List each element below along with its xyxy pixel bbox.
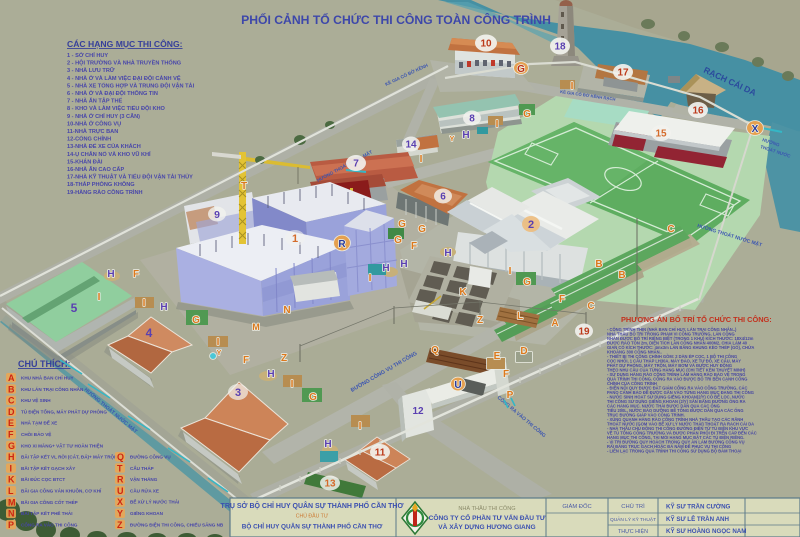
svg-text:I: I bbox=[10, 463, 13, 473]
svg-text:H: H bbox=[400, 259, 407, 270]
svg-text:H: H bbox=[267, 369, 274, 380]
svg-text:CHỒI BẢO VỆ: CHỒI BẢO VỆ bbox=[21, 430, 51, 437]
svg-text:GIẾNG KHOAN: GIẾNG KHOAN bbox=[130, 510, 164, 516]
svg-text:D: D bbox=[8, 407, 15, 417]
svg-text:Q: Q bbox=[431, 345, 439, 356]
svg-text:H: H bbox=[324, 439, 331, 450]
svg-text:K: K bbox=[459, 287, 467, 298]
svg-text:9 - NHÀ Ở CHỈ HUY (3 CĂN): 9 - NHÀ Ở CHỈ HUY (3 CĂN) bbox=[67, 113, 140, 120]
svg-text:T: T bbox=[117, 463, 123, 473]
svg-text:13-NHÀ ĐỂ XE CỦA KHÁCH: 13-NHÀ ĐỂ XE CỦA KHÁCH bbox=[67, 143, 141, 150]
svg-text:X: X bbox=[752, 124, 759, 135]
svg-text:11: 11 bbox=[375, 448, 386, 459]
svg-text:4: 4 bbox=[146, 326, 153, 340]
svg-text:10: 10 bbox=[480, 39, 492, 50]
svg-text:CẨU THÁP: CẨU THÁP bbox=[130, 465, 154, 471]
svg-text:CHỦ ĐẦU TƯ: CHỦ ĐẦU TƯ bbox=[296, 513, 329, 520]
svg-text:KHU LÁN TRẠI CÔNG NHÂN: KHU LÁN TRẠI CÔNG NHÂN bbox=[21, 385, 84, 392]
svg-text:KHU VỆ SINH: KHU VỆ SINH bbox=[21, 396, 51, 403]
svg-text:G: G bbox=[517, 64, 525, 75]
svg-text:I: I bbox=[369, 273, 372, 284]
svg-text:VẬN THĂNG: VẬN THĂNG bbox=[130, 476, 158, 482]
svg-text:T: T bbox=[241, 181, 247, 192]
svg-text:5 - NHÀ XE TỔNG HỢP VÀ TRUNG Đ: 5 - NHÀ XE TỔNG HỢP VÀ TRUNG ĐỘI VẬN TẢI bbox=[67, 81, 195, 89]
svg-text:18: 18 bbox=[554, 42, 566, 53]
svg-text:G: G bbox=[8, 441, 15, 451]
svg-text:F: F bbox=[243, 355, 249, 366]
svg-text:C: C bbox=[587, 301, 594, 312]
svg-text:12: 12 bbox=[412, 406, 424, 417]
svg-text:17-NHÀ KỸ THUẬT VÀ TIỂU ĐỘI VẬ: 17-NHÀ KỸ THUẬT VÀ TIỂU ĐỘI VẬN TẢI THỦY bbox=[67, 173, 193, 181]
svg-text:I: I bbox=[359, 421, 362, 432]
svg-text:I: I bbox=[217, 337, 220, 348]
svg-text:E: E bbox=[8, 418, 14, 428]
svg-text:PHỐI CẢNH TỔ CHỨC THI CÔNG TOÀ: PHỐI CẢNH TỔ CHỨC THI CÔNG TOÀN CÔNG TRÌ… bbox=[241, 12, 551, 27]
svg-text:B: B bbox=[8, 384, 15, 394]
svg-text:19-HÀNG RÀO CÔNG TRÌNH: 19-HÀNG RÀO CÔNG TRÌNH bbox=[67, 188, 143, 196]
svg-text:U: U bbox=[117, 486, 124, 496]
svg-text:CỔNG RA VÀO THI CÔNG: CỔNG RA VÀO THI CÔNG bbox=[21, 520, 78, 527]
svg-text:GIÁM ĐỐC: GIÁM ĐỐC bbox=[562, 503, 591, 510]
svg-text:G: G bbox=[192, 315, 200, 326]
svg-text:P: P bbox=[8, 520, 14, 530]
svg-text:M: M bbox=[252, 322, 260, 332]
svg-text:3: 3 bbox=[235, 387, 241, 399]
svg-text:KỸ SƯ TRẦN CƯỜNG: KỸ SƯ TRẦN CƯỜNG bbox=[666, 503, 731, 511]
svg-text:14-Ụ CHẮN NỔ VÀ KHO VŨ KHÍ: 14-Ụ CHẮN NỔ VÀ KHO VŨ KHÍ bbox=[67, 150, 151, 158]
svg-text:H: H bbox=[160, 302, 167, 313]
svg-text:8 - KHO VÀ LÀM VIỆC TIỂU ĐỘI K: 8 - KHO VÀ LÀM VIỆC TIỂU ĐỘI KHO bbox=[67, 104, 166, 112]
svg-text:THỰC HIỆN: THỰC HIỆN bbox=[618, 527, 648, 535]
svg-text:L: L bbox=[8, 486, 14, 496]
svg-text:Y: Y bbox=[450, 136, 455, 143]
svg-text:D: D bbox=[520, 346, 527, 357]
svg-text:L: L bbox=[517, 311, 523, 322]
svg-text:17: 17 bbox=[617, 68, 629, 79]
svg-text:Q: Q bbox=[117, 452, 124, 462]
svg-text:6: 6 bbox=[440, 192, 446, 203]
svg-text:B: B bbox=[618, 270, 625, 281]
svg-text:11-NHÀ TRỰC BAN: 11-NHÀ TRỰC BAN bbox=[67, 128, 118, 135]
svg-text:14: 14 bbox=[405, 140, 417, 151]
svg-text:H: H bbox=[107, 269, 114, 280]
svg-text:G: G bbox=[394, 235, 402, 246]
svg-text:9: 9 bbox=[214, 209, 220, 221]
svg-text:KỸ SƯ HOÀNG NGỌC NAM: KỸ SƯ HOÀNG NGỌC NAM bbox=[666, 528, 746, 535]
svg-text:CẦU RỬA XE: CẦU RỬA XE bbox=[130, 487, 159, 493]
svg-text:BÃI TẬP KẾT GẠCH XÂY: BÃI TẬP KẾT GẠCH XÂY bbox=[21, 465, 75, 471]
svg-text:CHỦ TRÌ: CHỦ TRÌ bbox=[621, 503, 645, 510]
svg-text:CÁC HẠNG MỤC THI CÔNG:: CÁC HẠNG MỤC THI CÔNG: bbox=[67, 38, 183, 49]
svg-text:CHÚ THÍCH:: CHÚ THÍCH: bbox=[18, 358, 71, 369]
svg-text:NHÀ THẦU THI CÔNG: NHÀ THẦU THI CÔNG bbox=[458, 505, 515, 512]
svg-text:BÃI TẬP KẾT PHẾ THẢI: BÃI TẬP KẾT PHẾ THẢI bbox=[21, 510, 72, 516]
svg-text:- LIÊN LẠC TRONG QUÁ TRÌNH THI: - LIÊN LẠC TRONG QUÁ TRÌNH THI CÔNG SỬ D… bbox=[607, 449, 741, 454]
svg-text:BÃI GIA CÔNG CỐT THÉP: BÃI GIA CÔNG CỐT THÉP bbox=[21, 498, 78, 505]
svg-text:R: R bbox=[117, 475, 124, 485]
svg-text:F: F bbox=[559, 294, 565, 305]
svg-text:Z: Z bbox=[117, 520, 123, 530]
svg-text:10-NHÀ Ở CÔNG VỤ: 10-NHÀ Ở CÔNG VỤ bbox=[67, 119, 121, 127]
svg-text:F: F bbox=[133, 269, 139, 280]
svg-text:1: 1 bbox=[292, 233, 298, 245]
svg-text:I: I bbox=[98, 292, 101, 303]
svg-text:19: 19 bbox=[578, 327, 590, 338]
svg-text:18-THÁP PHÒNG KHÔNG: 18-THÁP PHÒNG KHÔNG bbox=[67, 180, 135, 188]
svg-text:X: X bbox=[117, 497, 123, 507]
svg-text:16: 16 bbox=[692, 106, 704, 117]
svg-text:Z: Z bbox=[477, 315, 483, 326]
svg-text:1 - SỞ CHỈ HUY: 1 - SỞ CHỈ HUY bbox=[67, 52, 108, 59]
svg-text:F: F bbox=[8, 430, 14, 440]
svg-text:G: G bbox=[398, 219, 406, 230]
svg-text:TỦ ĐIỆN TỔNG, MÁY PHÁT DỰ PHÒN: TỦ ĐIỆN TỔNG, MÁY PHÁT DỰ PHÒNG bbox=[21, 407, 107, 414]
svg-text:H: H bbox=[462, 130, 469, 141]
svg-text:K: K bbox=[8, 475, 15, 485]
svg-text:G: G bbox=[418, 224, 426, 235]
svg-text:H: H bbox=[8, 452, 15, 462]
svg-text:KỸ SƯ LÊ TRẦN ANH: KỸ SƯ LÊ TRẦN ANH bbox=[666, 515, 730, 523]
svg-text:BỂ XỬ LÝ NƯỚC THẢI: BỂ XỬ LÝ NƯỚC THẢI bbox=[130, 498, 179, 505]
svg-text:G: G bbox=[523, 109, 531, 120]
svg-text:U: U bbox=[454, 380, 461, 391]
svg-text:16-NHÀ ĂN CAO CẤP: 16-NHÀ ĂN CAO CẤP bbox=[67, 166, 124, 173]
svg-text:BÃI GIA CÔNG VÁN KHUÔN, CƠ KHÍ: BÃI GIA CÔNG VÁN KHUÔN, CƠ KHÍ bbox=[21, 487, 102, 494]
svg-text:ĐƯỜNG CÔNG VỤ: ĐƯỜNG CÔNG VỤ bbox=[130, 453, 171, 460]
svg-text:G: G bbox=[309, 392, 317, 403]
svg-text:BÃI TẬP KẾT VL RỜI (CÁT, ĐÁ)+: BÃI TẬP KẾT VL RỜI (CÁT, ĐÁ)+ MÁY TRỘN bbox=[21, 453, 118, 460]
svg-text:2 - HỘI TRƯỜNG VÀ NHÀ TRUYỀN T: 2 - HỘI TRƯỜNG VÀ NHÀ TRUYỀN THỐNG bbox=[67, 59, 181, 67]
svg-text:N: N bbox=[283, 305, 290, 316]
svg-text:C: C bbox=[667, 224, 674, 235]
svg-text:E: E bbox=[494, 351, 501, 362]
svg-text:I: I bbox=[496, 119, 499, 130]
svg-text:P: P bbox=[507, 390, 514, 401]
svg-text:15-KHÁN ĐÀI: 15-KHÁN ĐÀI bbox=[67, 158, 103, 165]
svg-text:8: 8 bbox=[469, 114, 475, 125]
svg-text:F: F bbox=[503, 369, 509, 380]
svg-text:ĐƯỜNG ĐIỆN THI CÔNG, CHIẾU SÁN: ĐƯỜNG ĐIỆN THI CÔNG, CHIẾU SÁNG NB bbox=[130, 520, 224, 527]
svg-text:Y: Y bbox=[117, 509, 123, 519]
svg-text:15: 15 bbox=[655, 129, 667, 140]
svg-text:H: H bbox=[444, 248, 451, 259]
svg-text:3 - NHÀ LƯU TRỮ: 3 - NHÀ LƯU TRỮ bbox=[67, 67, 115, 74]
svg-text:N: N bbox=[8, 509, 15, 519]
svg-text:M: M bbox=[8, 497, 16, 507]
svg-text:7 - NHÀ ĂN TẬP THỂ: 7 - NHÀ ĂN TẬP THỂ bbox=[67, 98, 122, 105]
svg-text:F: F bbox=[411, 241, 417, 252]
svg-text:Y: Y bbox=[217, 350, 222, 357]
svg-text:13: 13 bbox=[324, 479, 336, 490]
svg-text:I: I bbox=[291, 379, 294, 390]
svg-text:B: B bbox=[595, 259, 602, 270]
svg-text:5: 5 bbox=[71, 301, 78, 315]
svg-text:7: 7 bbox=[353, 159, 359, 170]
svg-text:6 - NHÀ Ở VÀ ĐẠI ĐỘI THÔNG TIN: 6 - NHÀ Ở VÀ ĐẠI ĐỘI THÔNG TIN bbox=[67, 89, 158, 97]
svg-text:BÃI ĐÚC CỌC BTCT: BÃI ĐÚC CỌC BTCT bbox=[21, 476, 65, 482]
svg-text:G: G bbox=[523, 277, 531, 288]
svg-text:2: 2 bbox=[528, 219, 534, 231]
svg-text:QUẢN LÝ KỸ THUẬT: QUẢN LÝ KỸ THUẬT bbox=[610, 516, 656, 523]
svg-text:VÀ XÂY DỰNG HƯƠNG GIANG: VÀ XÂY DỰNG HƯƠNG GIANG bbox=[438, 522, 535, 531]
svg-text:A: A bbox=[551, 318, 558, 329]
svg-text:I: I bbox=[571, 81, 574, 92]
svg-text:I: I bbox=[143, 298, 146, 309]
svg-text:KHU NHÀ BAN CHỈ HUY: KHU NHÀ BAN CHỈ HUY bbox=[21, 375, 74, 381]
svg-text:H: H bbox=[382, 263, 389, 274]
svg-text:NHÀ TẠM ĐỂ XE: NHÀ TẠM ĐỂ XE bbox=[21, 420, 57, 426]
svg-text:R: R bbox=[338, 239, 346, 250]
svg-text:I: I bbox=[509, 266, 512, 277]
svg-text:PHƯƠNG ÁN BỐ TRÍ TỔ CHỨC THI C: PHƯƠNG ÁN BỐ TRÍ TỔ CHỨC THI CÔNG: bbox=[621, 314, 772, 324]
svg-text:A: A bbox=[8, 373, 15, 383]
svg-text:C: C bbox=[8, 396, 15, 406]
svg-text:Z: Z bbox=[281, 353, 287, 364]
svg-text:KHO XI MĂNG+ VẬT TƯ HOÀN THIỆN: KHO XI MĂNG+ VẬT TƯ HOÀN THIỆN bbox=[21, 441, 104, 448]
svg-text:4 - NHÀ Ở VÀ LÀM VIỆC ĐẠI ĐỘI: 4 - NHÀ Ở VÀ LÀM VIỆC ĐẠI ĐỘI CẢNH VỆ bbox=[67, 74, 181, 82]
svg-text:I: I bbox=[420, 154, 423, 165]
svg-text:12-CỔNG CHÍNH: 12-CỔNG CHÍNH bbox=[67, 135, 111, 143]
